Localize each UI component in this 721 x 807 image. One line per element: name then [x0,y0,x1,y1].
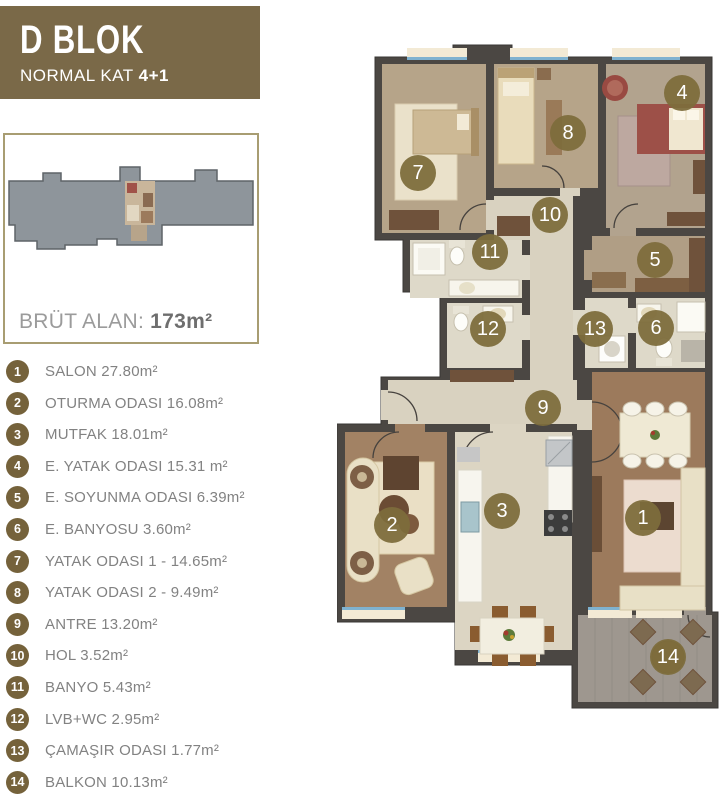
legend-item: 13 ÇAMAŞIR ODASI 1.77m² [6,739,336,762]
building-silhouette [7,163,257,273]
block-title: D BLOK [20,20,207,60]
floor-subtitle-text: NORMAL KAT [20,66,134,85]
floor-subtitle: NORMAL KAT4+1 [20,66,260,86]
page: { "header": { "title": "D BLOK", "subtit… [0,0,721,807]
legend-item-number: 3 [6,423,29,446]
legend-item-number: 10 [6,644,29,667]
room-marker: 9 [525,390,561,426]
room-legend: 1 SALON 27.80m² 2 OTURMA ODASI 16.08m² 3… [6,360,336,802]
legend-item-label: OTURMA ODASI 16.08m² [45,395,223,412]
room-marker: 4 [664,75,700,111]
room-marker: 14 [650,639,686,675]
legend-item-number: 5 [6,486,29,509]
legend-item: 14 BALKON 10.13m² [6,771,336,794]
legend-item-number: 6 [6,518,29,541]
legend-item: 8 YATAK ODASI 2 - 9.49m² [6,581,336,604]
gross-area-label: BRÜT ALAN: [19,310,144,333]
legend-item-label: MUTFAK 18.01m² [45,426,168,443]
block-header: D BLOK NORMAL KAT4+1 [0,6,260,99]
legend-item-label: E. BANYOSU 3.60m² [45,521,191,538]
legend-item: 1 SALON 27.80m² [6,360,336,383]
room-marker: 3 [484,493,520,529]
legend-item-label: YATAK ODASI 1 - 14.65m² [45,553,227,570]
legend-item-label: HOL 3.52m² [45,647,128,664]
room-marker: 1 [625,500,661,536]
floor-plan: 1234567891011121314 [337,40,721,712]
room-marker: 5 [637,242,673,278]
legend-item-label: ANTRE 13.20m² [45,616,158,633]
legend-item-number: 12 [6,708,29,731]
legend-item-label: SALON 27.80m² [45,363,158,380]
keyplan-box: BRÜT ALAN:173m² [3,133,259,344]
legend-item-number: 8 [6,581,29,604]
legend-item-label: E. YATAK ODASI 15.31 m² [45,458,228,475]
room-marker: 13 [577,311,613,347]
legend-item-number: 7 [6,550,29,573]
legend-item-number: 2 [6,392,29,415]
legend-item: 12 LVB+WC 2.95m² [6,708,336,731]
legend-item-label: E. SOYUNMA ODASI 6.39m² [45,489,245,506]
legend-item-number: 4 [6,455,29,478]
legend-item: 3 MUTFAK 18.01m² [6,423,336,446]
legend-item: 6 E. BANYOSU 3.60m² [6,518,336,541]
room-marker: 10 [532,197,568,233]
legend-item: 7 YATAK ODASI 1 - 14.65m² [6,550,336,573]
legend-item-label: BALKON 10.13m² [45,774,168,791]
gross-area: BRÜT ALAN:173m² [19,310,212,334]
legend-item-number: 13 [6,739,29,762]
legend-item-label: ÇAMAŞIR ODASI 1.77m² [45,742,219,759]
legend-item-label: BANYO 5.43m² [45,679,151,696]
legend-item-number: 1 [6,360,29,383]
legend-item: 4 E. YATAK ODASI 15.31 m² [6,455,336,478]
room-marker: 11 [472,234,508,270]
legend-item: 9 ANTRE 13.20m² [6,613,336,636]
room-marker: 7 [400,155,436,191]
legend-item: 10 HOL 3.52m² [6,644,336,667]
floor-plan-drawing [337,40,721,712]
legend-item: 11 BANYO 5.43m² [6,676,336,699]
legend-item-number: 14 [6,771,29,794]
room-marker: 12 [470,311,506,347]
gross-area-value: 173m² [150,310,212,333]
legend-item: 2 OTURMA ODASI 16.08m² [6,392,336,415]
legend-item: 5 E. SOYUNMA ODASI 6.39m² [6,486,336,509]
legend-item-label: LVB+WC 2.95m² [45,711,159,728]
legend-item-label: YATAK ODASI 2 - 9.49m² [45,584,219,601]
room-marker: 6 [638,310,674,346]
legend-item-number: 11 [6,676,29,699]
room-marker: 2 [374,507,410,543]
floor-subtitle-type: 4+1 [139,66,169,85]
room-marker: 8 [550,115,586,151]
legend-item-number: 9 [6,613,29,636]
